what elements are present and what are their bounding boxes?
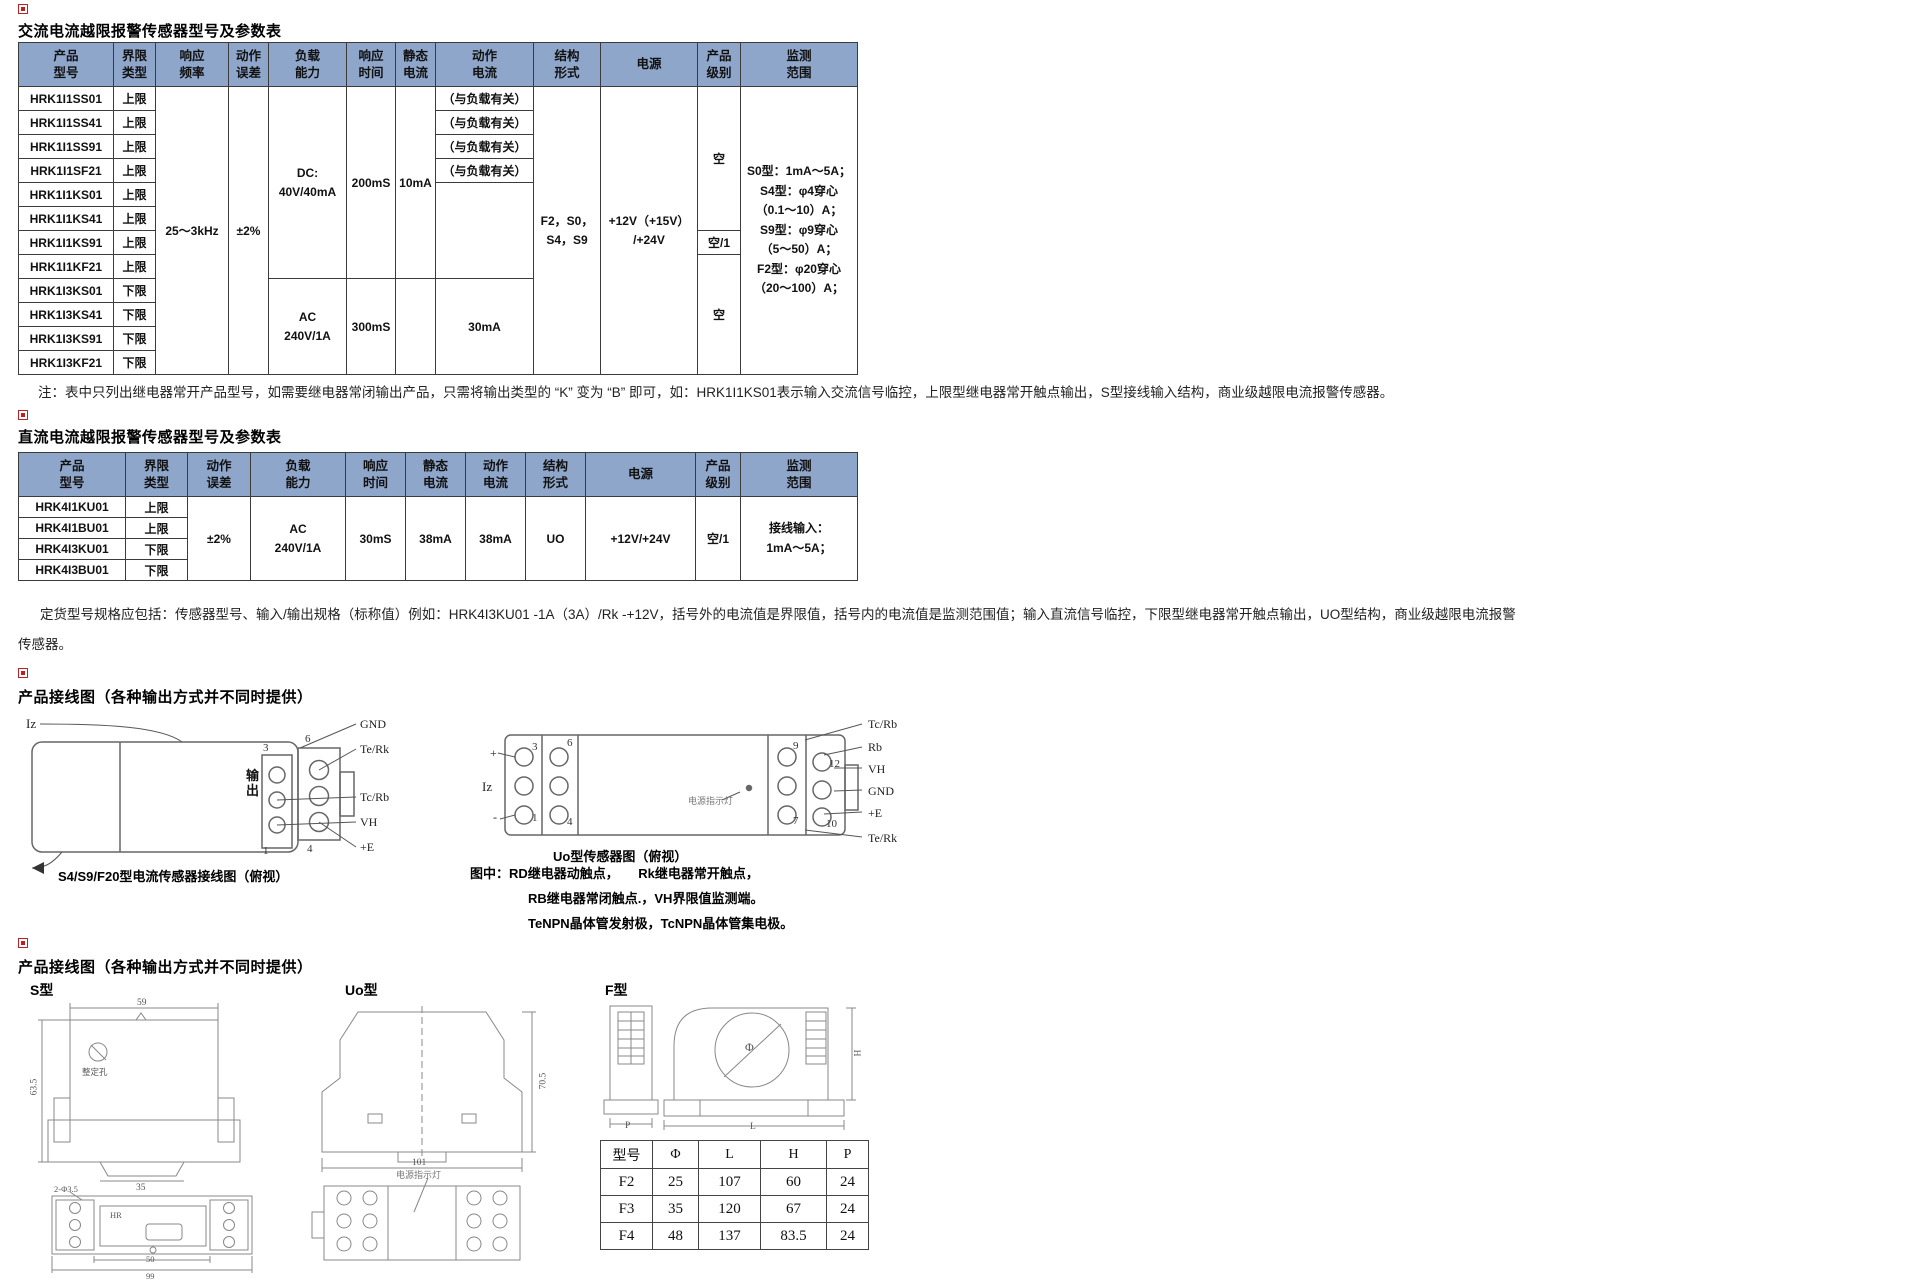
dim-label: 99 (146, 1271, 155, 1281)
dim-cell: 107 (699, 1169, 761, 1196)
dim-label: 35 (136, 1183, 146, 1193)
col-header: Φ (653, 1141, 699, 1169)
dim-cell: 24 (827, 1169, 869, 1196)
dim-cell: F3 (601, 1196, 653, 1223)
dim-label: L (750, 1122, 756, 1132)
phi-label: Φ (745, 1040, 754, 1055)
dim-label: 59 (137, 998, 147, 1008)
dim-cell: 35 (653, 1196, 699, 1223)
dim-cell: 24 (827, 1196, 869, 1223)
dim-cell: 83.5 (761, 1223, 827, 1250)
dim-cell: 137 (699, 1223, 761, 1250)
table-row: F4 48 137 83.5 24 (601, 1223, 869, 1250)
col-header: P (827, 1141, 869, 1169)
col-header: L (699, 1141, 761, 1169)
table-row: F3 35 120 67 24 (601, 1196, 869, 1223)
dim-label: 101 (412, 1158, 426, 1168)
table-header-row: 型号 Φ L H P (601, 1141, 869, 1169)
dim-cell: 25 (653, 1169, 699, 1196)
col-header: 型号 (601, 1141, 653, 1169)
pot-hole-label: 整定孔 (82, 1066, 108, 1078)
outline-drawings (0, 0, 1920, 1282)
inner-label: HR (110, 1210, 122, 1220)
dim-label: 70.5 (538, 1073, 548, 1090)
dim-label: 2-Φ3.5 (54, 1184, 78, 1194)
dim-label: P (625, 1121, 630, 1131)
f-dimension-table: 型号 Φ L H P F2 25 107 60 24 F3 35 120 67 … (600, 1140, 869, 1250)
page: 交流电流越限报警传感器型号及参数表 产品型号 界限类型 响应频率 动作误差 负载… (0, 0, 1920, 1282)
dim-cell: 60 (761, 1169, 827, 1196)
dim-label: 50 (146, 1254, 155, 1264)
dim-cell: 24 (827, 1223, 869, 1250)
dim-cell: F4 (601, 1223, 653, 1250)
power-led-label: 电源指示灯 (396, 1168, 441, 1181)
col-header: H (761, 1141, 827, 1169)
dim-cell: 120 (699, 1196, 761, 1223)
dim-cell: 48 (653, 1223, 699, 1250)
dim-label: 63.5 (29, 1079, 39, 1096)
dim-cell: 67 (761, 1196, 827, 1223)
table-row: F2 25 107 60 24 (601, 1169, 869, 1196)
dim-label: H (853, 1050, 863, 1057)
dim-cell: F2 (601, 1169, 653, 1196)
